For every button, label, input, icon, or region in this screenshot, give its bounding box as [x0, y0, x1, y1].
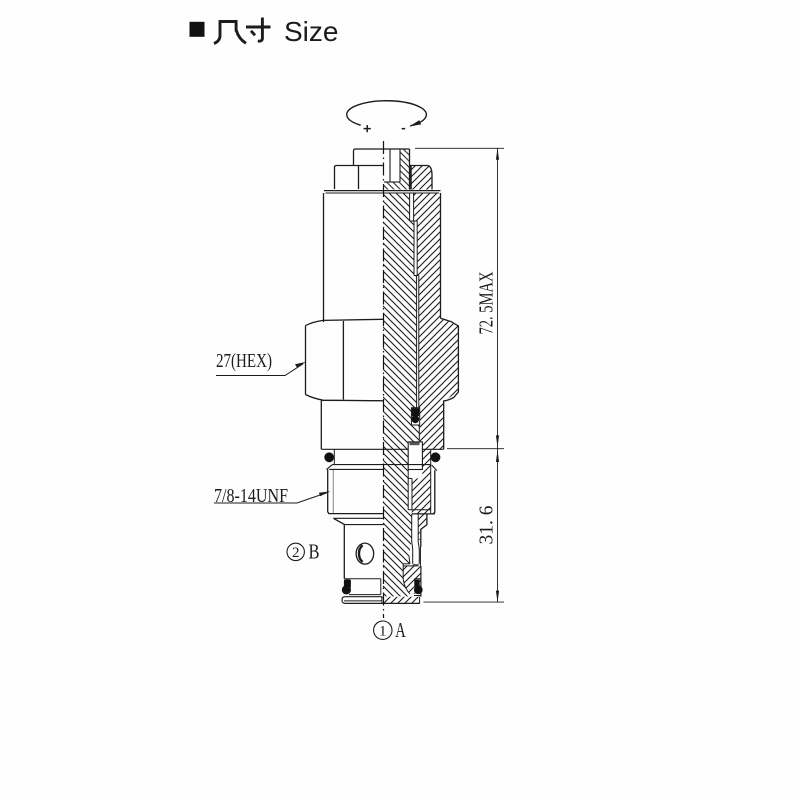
- svg-text:A: A: [395, 618, 406, 642]
- svg-text:2: 2: [292, 545, 300, 561]
- svg-text:72. 5MAX: 72. 5MAX: [476, 271, 498, 334]
- svg-text:31. 6: 31. 6: [476, 506, 498, 545]
- svg-text:1: 1: [379, 624, 387, 640]
- svg-text:27(HEX): 27(HEX): [216, 350, 272, 372]
- svg-text:B: B: [309, 540, 320, 564]
- svg-text:Size: Size: [284, 16, 338, 47]
- svg-text:7/8-14UNF: 7/8-14UNF: [214, 485, 288, 507]
